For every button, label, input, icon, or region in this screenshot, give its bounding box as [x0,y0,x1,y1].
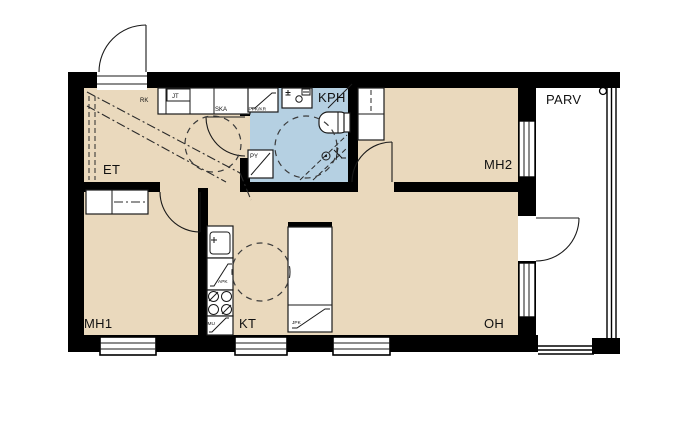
jt-label: JT [172,94,179,100]
window-oh-balcony [519,263,535,317]
stove [207,290,233,316]
et-closet-row: JT SKA [158,88,250,114]
room-label-mh2: MH2 [484,157,512,172]
entrance-door [97,25,147,90]
washer-dryer: PPK/KR [248,88,278,113]
toilet [319,112,350,133]
py-label: PY [250,154,258,160]
floor-plan: JT SKA RK PPK/KR PY [0,0,677,441]
room-label-oh: OH [484,316,504,331]
wall-left [68,72,84,352]
ppk-kr-label: PPK/KR [249,107,267,113]
wall-top [68,72,620,88]
ska-label: SKA [215,107,227,113]
wall-mh2-oh [394,182,518,192]
kitchen-sink [207,226,233,258]
wall-kph-hall [240,182,358,192]
balcony-floor [536,88,606,346]
floor-plan-drawing: JT SKA RK PPK/KR PY [0,0,677,441]
apk-label: APK [218,279,228,285]
mh1-wardrobe [86,190,148,214]
mu-label: MU [208,321,216,327]
py-cabinet: PY [248,150,273,178]
fridge-freezer-cabinet: JPK [288,222,332,332]
dishwasher: APK [207,258,233,290]
room-label-mh1: MH1 [84,316,112,331]
window-kt [235,337,287,355]
wall-kph-mh2 [348,88,358,182]
room-label-parv: PARV [546,92,581,107]
rk-label: RK [140,98,148,104]
room-label-et: ET [103,162,120,177]
washbasin [282,88,312,108]
mh2-wardrobe [358,88,384,140]
jpk-label: JPK [292,320,302,326]
window-mh2-balcony [519,121,535,177]
window-oh [333,337,390,355]
oven: MU [207,316,233,335]
window-mh1 [100,337,156,355]
room-label-kph: KPH [318,90,346,105]
balcony-drain-icon [600,88,607,95]
room-label-kt: KT [239,316,256,331]
